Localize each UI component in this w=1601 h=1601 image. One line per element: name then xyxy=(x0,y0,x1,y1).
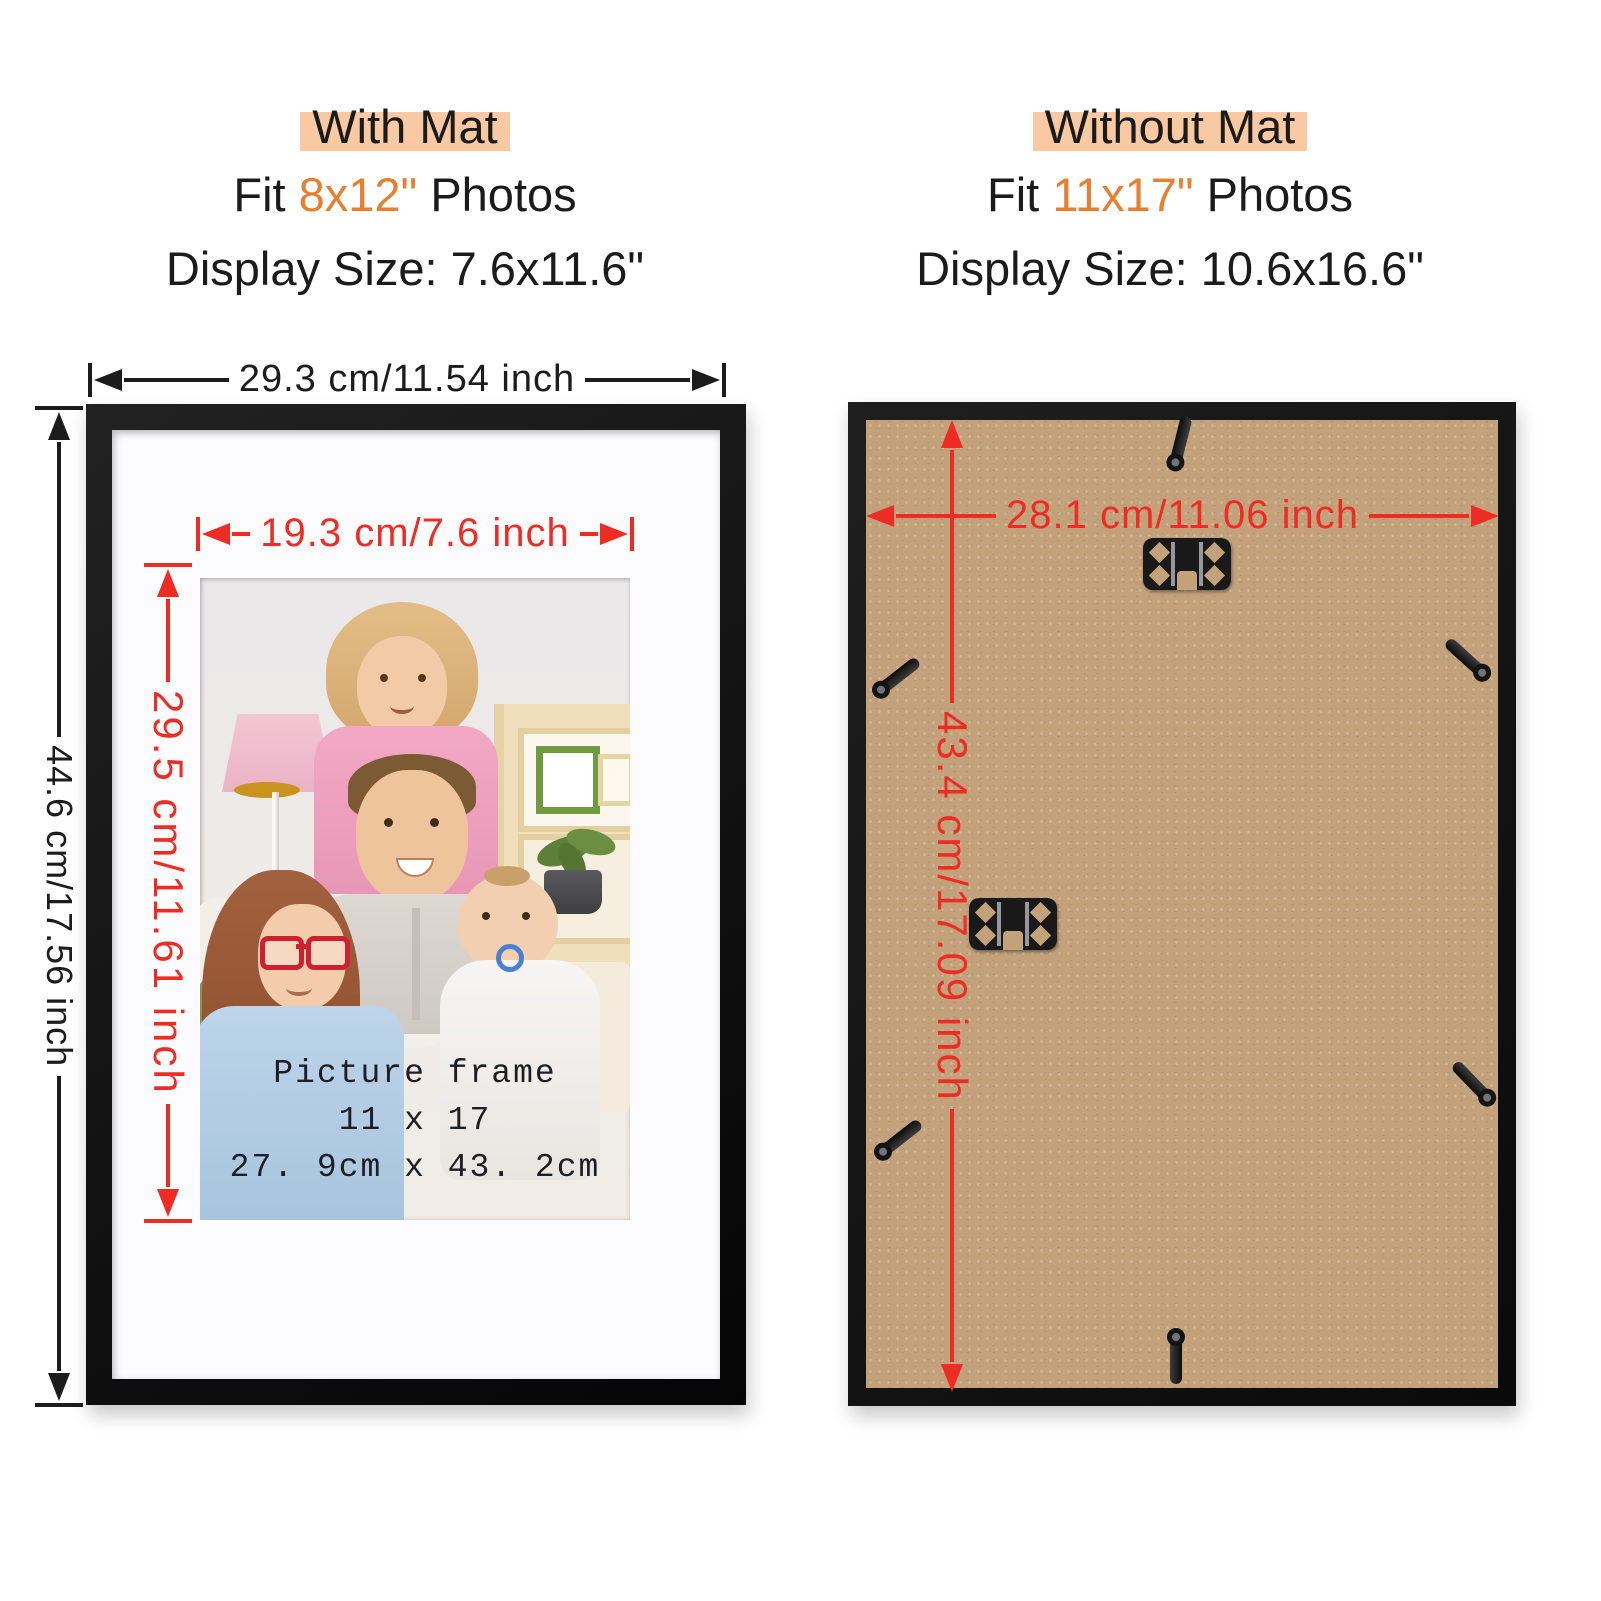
turn-button-clip xyxy=(1447,1057,1500,1111)
white-mat: Picture frame 11 x 17 27. 9cm x 43. 2cm xyxy=(112,430,720,1379)
dimension-line xyxy=(580,532,598,536)
sawtooth-hanger xyxy=(1143,538,1231,590)
with-mat-title: With Mat xyxy=(88,96,722,158)
turn-button-clip xyxy=(868,653,924,703)
tick-icon xyxy=(630,517,634,551)
arrow-down-icon xyxy=(48,1373,70,1401)
turn-button-clip xyxy=(870,1115,926,1165)
opening-height-label: 29.5 cm/11.61 inch xyxy=(144,684,192,1102)
arrow-down-icon xyxy=(941,1364,963,1392)
tick-icon xyxy=(144,563,192,567)
family-photo: Picture frame 11 x 17 27. 9cm x 43. 2cm xyxy=(200,578,630,1220)
board-width-label: 28.1 cm/11.06 inch xyxy=(998,493,1367,538)
turn-button-clip xyxy=(1164,414,1197,473)
hanger-hole xyxy=(975,902,996,923)
mother-smile xyxy=(286,980,312,996)
arrow-left-icon xyxy=(202,523,230,545)
hanger-hole xyxy=(1204,565,1225,586)
dimension-line xyxy=(585,378,690,382)
caption-line: Picture frame xyxy=(200,1050,630,1097)
hanger-hole xyxy=(975,925,996,946)
turn-button-clip xyxy=(1441,634,1496,686)
without-mat-display-size: Display Size: 10.6x16.6" xyxy=(846,232,1494,306)
baby-eye xyxy=(482,912,490,920)
with-mat-header: With Mat Fit 8x12" Photos Display Size: … xyxy=(88,96,722,306)
fit-size-accent: 8x12" xyxy=(299,168,418,221)
with-mat-fit-line: Fit 8x12" Photos xyxy=(88,158,722,232)
arrow-up-icon xyxy=(157,569,179,597)
dimension-line xyxy=(57,1076,61,1371)
tick-icon xyxy=(35,406,83,410)
opening-width-label: 19.3 cm/7.6 inch xyxy=(252,511,578,556)
arrow-right-icon xyxy=(600,523,628,545)
hanger-bar xyxy=(1199,542,1203,586)
lamp-inner-glow xyxy=(234,782,300,798)
girl-face xyxy=(357,636,447,738)
outer-height-dimension: 44.6 cm/17.56 inch xyxy=(34,406,84,1407)
dimension-line xyxy=(57,442,61,737)
dimension-line xyxy=(166,1104,170,1187)
dimension-line xyxy=(950,1109,954,1362)
dimension-line xyxy=(166,599,170,682)
without-mat-title-highlight: Without Mat xyxy=(1033,100,1308,153)
dimension-line xyxy=(124,378,229,382)
fit-suffix: Photos xyxy=(430,168,576,221)
hanger-slot xyxy=(1003,931,1023,950)
tick-icon xyxy=(722,363,726,397)
outer-height-label: 44.6 cm/17.56 inch xyxy=(38,739,80,1073)
hanger-hole xyxy=(1030,925,1051,946)
caption-line: 11 x 17 xyxy=(200,1097,630,1144)
fit-suffix: Photos xyxy=(1207,168,1353,221)
hanger-hole xyxy=(1149,542,1170,563)
small-tan-frame xyxy=(598,754,630,806)
sawtooth-hanger xyxy=(969,898,1057,950)
picture-frame-size-infographic: With Mat Fit 8x12" Photos Display Size: … xyxy=(0,0,1601,1601)
outer-width-label: 29.3 cm/11.54 inch xyxy=(231,358,583,401)
hanger-bar xyxy=(1171,542,1175,586)
arrow-right-icon xyxy=(692,369,720,391)
dimension-line xyxy=(1369,514,1469,518)
fit-prefix: Fit xyxy=(987,168,1039,221)
tick-icon xyxy=(88,363,92,397)
hanger-slot xyxy=(1177,571,1197,590)
mother-glasses-lens xyxy=(306,936,350,970)
photo-size-caption: Picture frame 11 x 17 27. 9cm x 43. 2cm xyxy=(200,1050,630,1191)
hanger-bar xyxy=(997,902,1001,946)
hanger-hole xyxy=(1149,565,1170,586)
without-mat-title: Without Mat xyxy=(846,96,1494,158)
arrow-left-icon xyxy=(94,369,122,391)
arrow-up-icon xyxy=(48,412,70,440)
tick-icon xyxy=(35,1403,83,1407)
hanger-hole xyxy=(1030,902,1051,923)
dimension-line xyxy=(950,450,954,703)
green-picture-frame xyxy=(536,746,600,814)
arrow-left-icon xyxy=(866,505,894,527)
girl-eye xyxy=(418,674,426,682)
caption-line: 27. 9cm x 43. 2cm xyxy=(200,1144,630,1191)
mother-glasses-bridge xyxy=(296,944,306,949)
with-mat-display-size: Display Size: 7.6x11.6" xyxy=(88,232,722,306)
tick-icon xyxy=(196,517,200,551)
father-eye xyxy=(384,818,393,827)
without-mat-header: Without Mat Fit 11x17" Photos Display Si… xyxy=(846,96,1494,306)
arrow-down-icon xyxy=(157,1189,179,1217)
dimension-line xyxy=(232,532,250,536)
mother-glasses-lens xyxy=(260,936,304,970)
hanger-hole xyxy=(1204,542,1225,563)
without-mat-fit-line: Fit 11x17" Photos xyxy=(846,158,1494,232)
board-height-dimension: 43.4 cm/17.09 inch xyxy=(930,420,974,1392)
board-height-label: 43.4 cm/17.09 inch xyxy=(928,705,976,1108)
fit-prefix: Fit xyxy=(233,168,285,221)
fit-size-accent: 11x17" xyxy=(1052,168,1193,221)
clip-screw xyxy=(1172,1333,1180,1341)
father-eye xyxy=(430,818,439,827)
arrow-up-icon xyxy=(941,420,963,448)
opening-height-dimension: 29.5 cm/11.61 inch xyxy=(144,563,192,1223)
girl-eye xyxy=(380,674,388,682)
outer-width-dimension: 29.3 cm/11.54 inch xyxy=(88,358,726,401)
hanger-bar xyxy=(1025,902,1029,946)
with-mat-title-highlight: With Mat xyxy=(300,100,509,153)
baby-eye xyxy=(522,912,530,920)
turn-button-clip xyxy=(1166,1328,1186,1384)
baby-teether-toy xyxy=(496,944,524,972)
baby-hair xyxy=(484,866,530,886)
arrow-right-icon xyxy=(1471,505,1499,527)
opening-width-dimension: 19.3 cm/7.6 inch xyxy=(196,511,634,556)
father-shirt-placket xyxy=(412,908,420,1020)
father-face xyxy=(356,770,468,902)
girl-smile xyxy=(390,698,414,714)
tick-icon xyxy=(144,1219,192,1223)
